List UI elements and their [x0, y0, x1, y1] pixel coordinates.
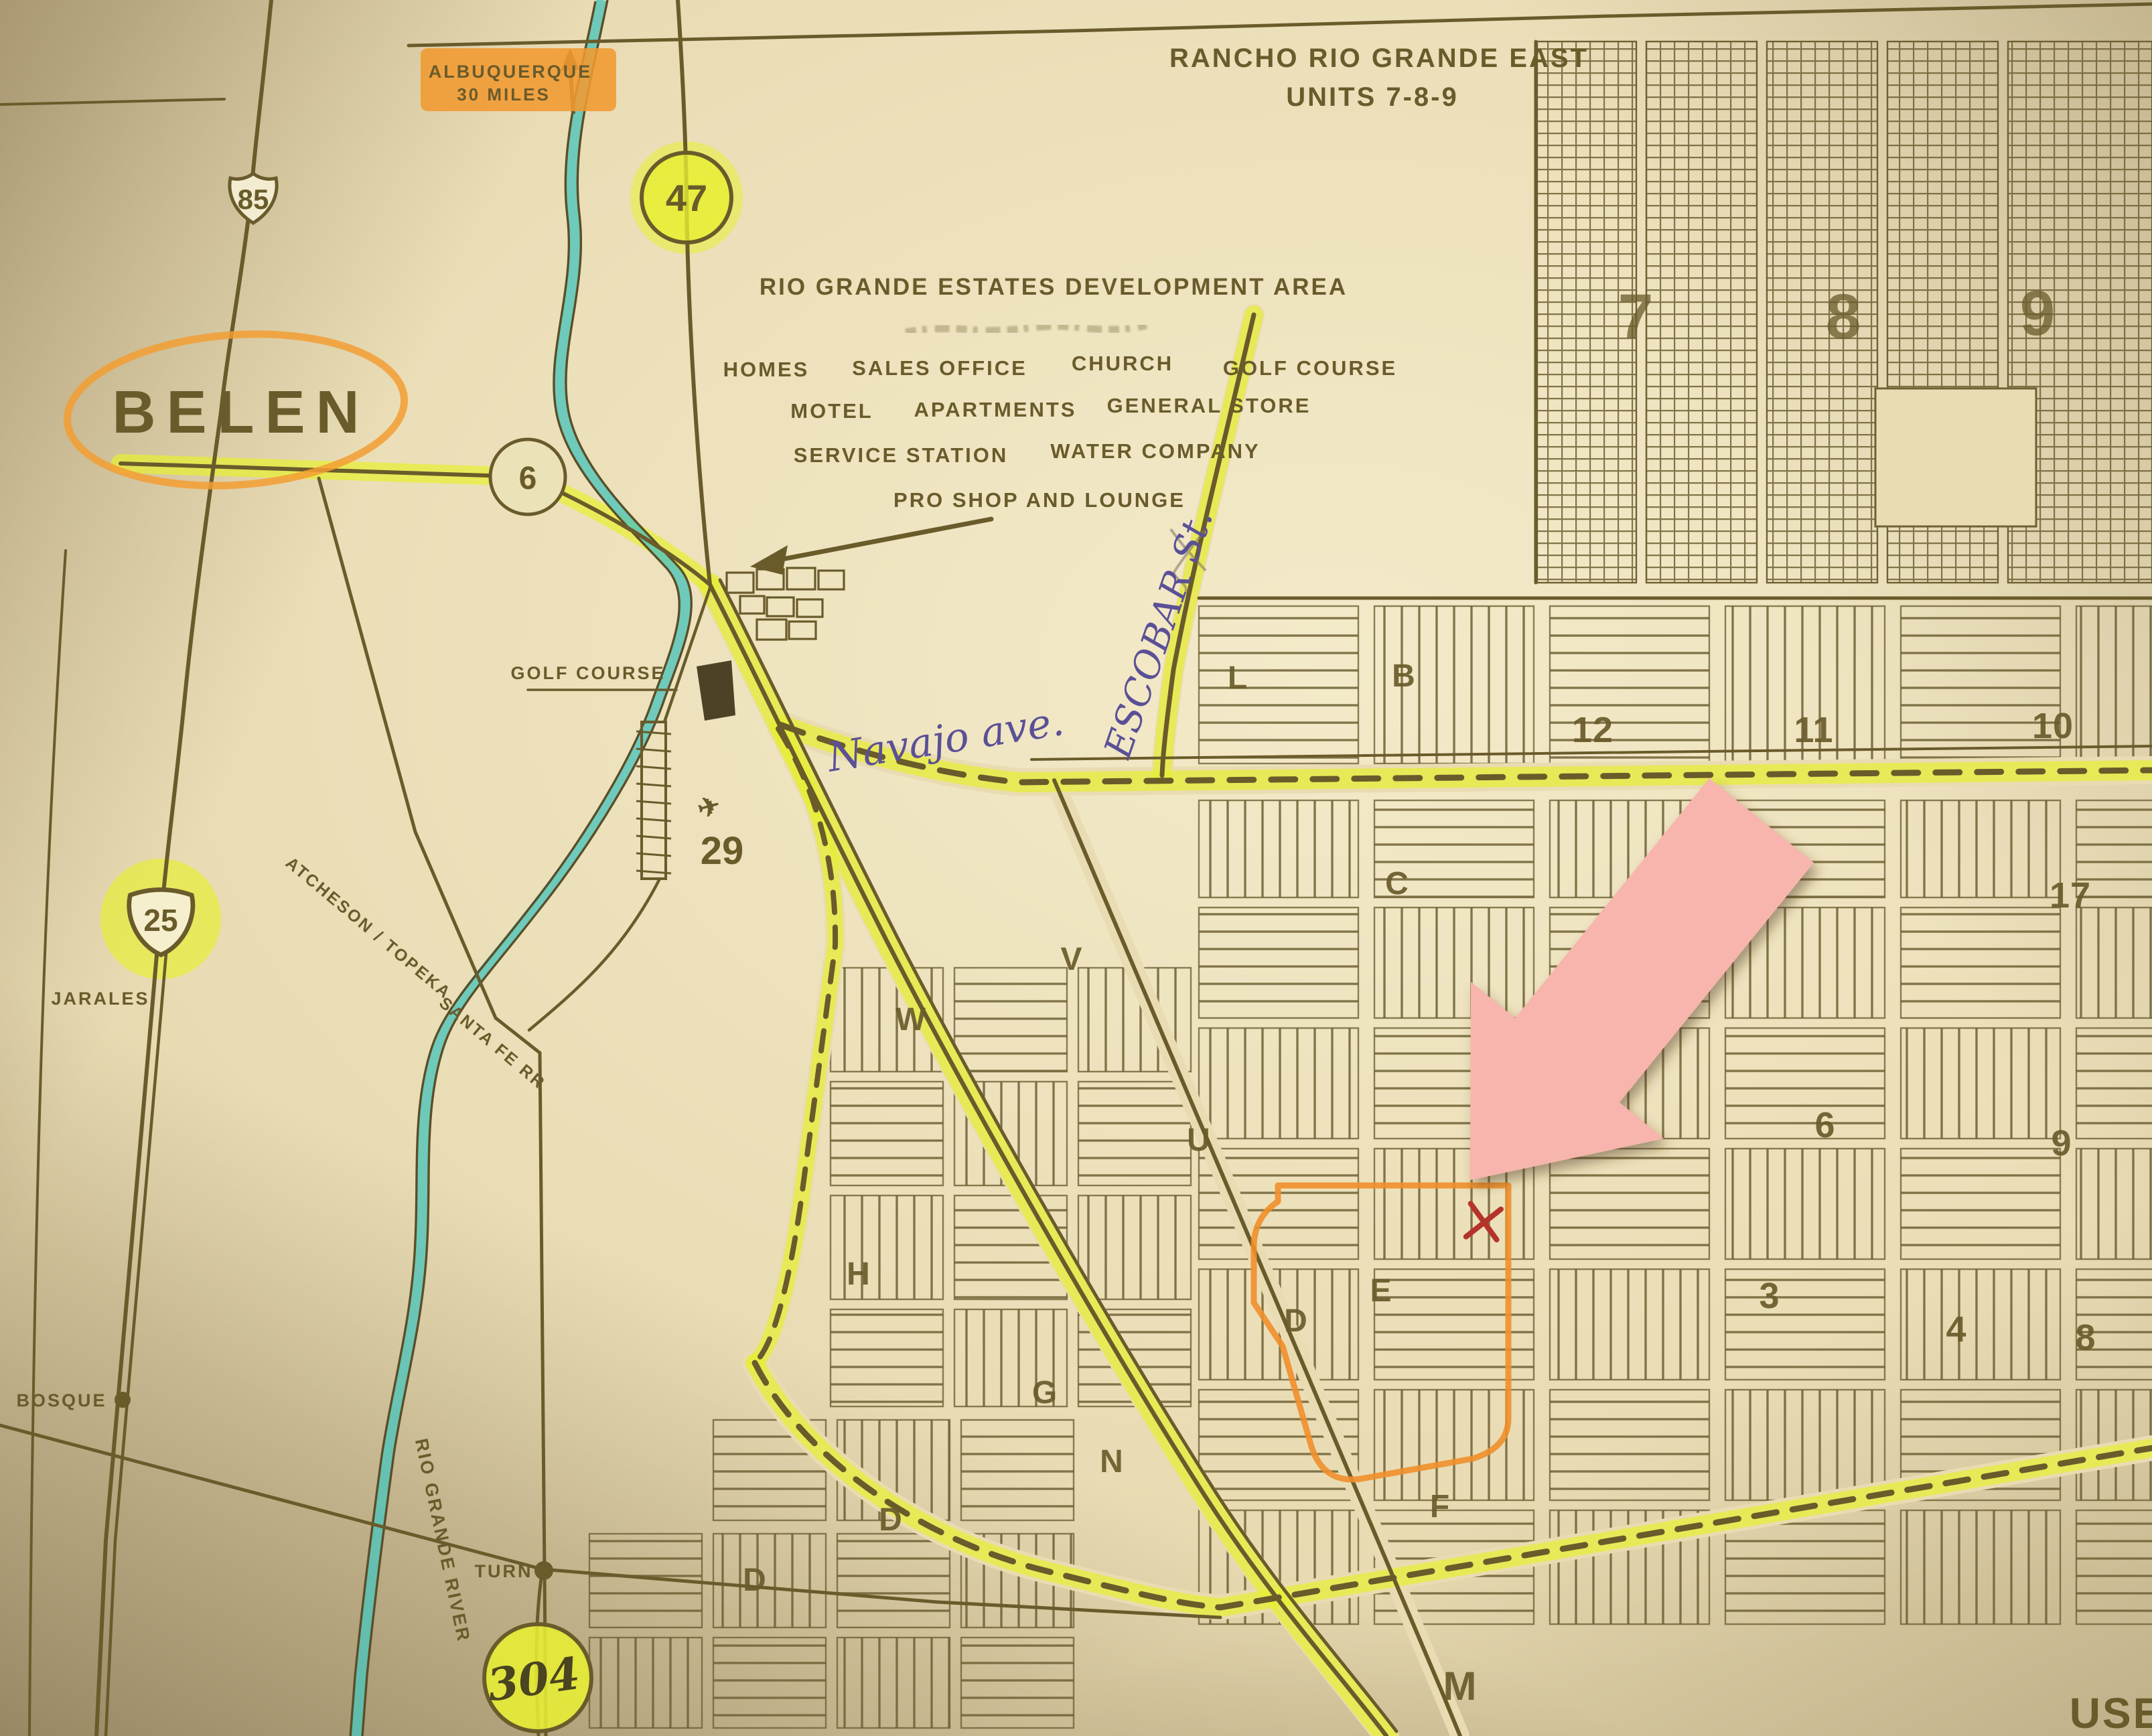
subdivision-block: [2076, 606, 2152, 764]
block-V: V: [1060, 942, 1082, 977]
i-25-label: 25: [143, 903, 177, 938]
map-title-line2: UNITS 7-8-9: [1286, 82, 1459, 112]
pointer-line: [772, 519, 991, 561]
subdivision-block: [1901, 908, 2060, 1018]
map-title: RANCHO RIO GRANDE EAST UNITS 7-8-9: [1169, 44, 1589, 112]
subdivision-block: [831, 1309, 943, 1406]
turn-label: TURN: [475, 1561, 533, 1581]
map-photo: 85 47 6 25 304 29 ✈ ALBUQUERQUE 30 MILES…: [0, 0, 2152, 1736]
subdivision-block: [2076, 1510, 2152, 1624]
illegible-overprint: [906, 325, 1147, 332]
river-label: RIO GRANDE RIVER: [411, 1437, 474, 1644]
dense-grid-strip: [1646, 42, 1757, 583]
top-note-line1: ALBUQUERQUE: [429, 62, 593, 82]
unit-12: 12: [1572, 710, 1613, 750]
nm-304-marker: 304: [484, 1624, 591, 1731]
subdivision-block: [1078, 1082, 1191, 1185]
nm-47-marker: 47: [642, 153, 731, 242]
unit-7: 7: [1618, 281, 1654, 352]
map-border-line: [409, 4, 2152, 46]
subdivision-block: [1550, 1149, 1709, 1259]
subdivision-block: [1725, 1269, 1885, 1380]
subdivision-block: [1199, 908, 1358, 1018]
block-E: E: [1370, 1273, 1392, 1309]
rio-grande-river: [350, 0, 691, 1736]
subdivision-block: [2076, 1028, 2152, 1139]
us-85-label: 85: [238, 184, 269, 215]
unit-6: 6: [1814, 1105, 1835, 1145]
unit-10: 10: [2032, 706, 2074, 746]
nm-6-marker: 6: [490, 439, 565, 514]
subdivision-block: [837, 1638, 950, 1728]
subdivision-block: [2076, 1149, 2152, 1259]
subdivision-block: [713, 1638, 826, 1728]
amenity-service-station: SERVICE STATION: [794, 443, 1009, 467]
subdivision-block: [713, 1534, 826, 1627]
subdivision-block: [1901, 1510, 2060, 1624]
subdivision-block: [1550, 1390, 1709, 1500]
subdivision-block: [954, 968, 1067, 1072]
bosque-junction-dot: [115, 1392, 131, 1408]
amenity-water-company: WATER COMPANY: [1050, 439, 1260, 463]
amenity-pro-shop: PRO SHOP AND LOUNGE: [893, 488, 1186, 512]
airport-icon: ✈: [695, 790, 724, 824]
subdivision-block: [1901, 800, 2060, 897]
edge-cut-label: USE: [2070, 1689, 2152, 1736]
block-D: D: [1284, 1303, 1308, 1339]
development-text-block: RIO GRANDE ESTATES DEVELOPMENT AREA HOME…: [723, 274, 1398, 512]
block-W: W: [895, 1002, 926, 1037]
nm-47-label: 47: [666, 177, 707, 219]
subdivision-block: [831, 1082, 943, 1185]
subdivision-block: [1901, 1269, 2060, 1380]
amenity-homes: HOMES: [723, 358, 810, 381]
top-note-line2: 30 MILES: [457, 84, 551, 104]
nm-6-label: 6: [519, 461, 537, 496]
subdivision-block: [1725, 1028, 1885, 1139]
open-block: [1875, 388, 2036, 526]
subdivision-block: [837, 1534, 950, 1627]
us-85-shield: 85: [230, 173, 277, 223]
subdivision-block: [1901, 1149, 2060, 1259]
amenity-general-store: GENERAL STORE: [1107, 394, 1311, 417]
turn-junction-dot: [534, 1561, 553, 1580]
block-D3: D: [743, 1563, 767, 1598]
subdivision-block: [2076, 908, 2152, 1018]
belen-label: BELEN: [112, 379, 370, 446]
development-heading: RIO GRANDE ESTATES DEVELOPMENT AREA: [760, 274, 1348, 300]
subdivision-block: [1078, 1196, 1191, 1299]
block-D2: D: [879, 1502, 903, 1538]
unit-11: 11: [1794, 710, 1833, 750]
block-G: G: [1032, 1375, 1058, 1410]
amenity-motel: MOTEL: [790, 399, 873, 423]
block-M: M: [1443, 1664, 1478, 1709]
subdivision-block: [1199, 606, 1358, 764]
unit-9b: 9: [2051, 1123, 2072, 1163]
unit-17: 17: [2050, 875, 2091, 916]
subdivision-block: [1901, 1028, 2060, 1139]
subdivision-block: [1725, 1390, 1885, 1500]
block-C: C: [1385, 866, 1409, 901]
subdivision-block: [1199, 1028, 1358, 1139]
block-F: F: [1430, 1489, 1450, 1524]
amenity-church: CHURCH: [1072, 352, 1173, 375]
railroad-yard: [636, 722, 671, 879]
map-title-line1: RANCHO RIO GRANDE EAST: [1169, 44, 1589, 73]
marker-29-label: 29: [701, 829, 744, 873]
block-U: U: [1187, 1123, 1211, 1158]
block-L: L: [1228, 660, 1248, 696]
golf-course-label: GOLF COURSE: [510, 663, 665, 683]
unit-3: 3: [1759, 1276, 1780, 1316]
amenity-golf-course: GOLF COURSE: [1223, 356, 1397, 380]
subdivision-block: [589, 1638, 702, 1728]
railroad-label-1: ATCHESON / TOPEKA: [282, 853, 455, 1003]
subdivision-block: [1199, 800, 1358, 897]
subdivision-block: [1550, 1269, 1709, 1380]
block-N: N: [1100, 1444, 1124, 1479]
unit-9: 9: [2020, 278, 2056, 349]
block-B: B: [1392, 658, 1416, 694]
amenity-sales-office: SALES OFFICE: [852, 356, 1027, 380]
map-canvas: 85 47 6 25 304 29 ✈ ALBUQUERQUE 30 MILES…: [0, 0, 2152, 1736]
jarales-label: JARALES: [51, 989, 149, 1009]
unit-8b: 8: [2075, 1317, 2096, 1358]
unit-4: 4: [1946, 1309, 1966, 1350]
subdivision-block: [1374, 908, 1534, 1018]
block-H: H: [847, 1256, 871, 1292]
unit-8: 8: [1826, 281, 1861, 352]
building-icon: [697, 660, 735, 721]
subdivision-block: [961, 1638, 1074, 1728]
nm-47-road: [678, 0, 710, 585]
bosque-label: BOSQUE: [16, 1390, 106, 1410]
amenity-apartments: APARTMENTS: [914, 398, 1077, 421]
subdivision-block: [961, 1420, 1074, 1520]
subdivision-block: [1725, 1149, 1885, 1259]
